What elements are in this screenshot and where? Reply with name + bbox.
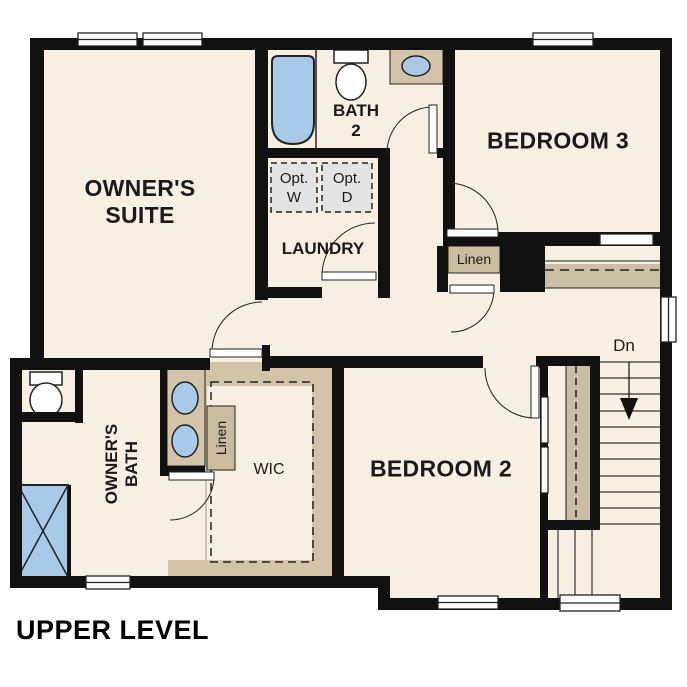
closet-door-panel xyxy=(541,447,548,493)
hall-linen-label: Linen xyxy=(457,251,491,267)
wall-segment xyxy=(378,148,390,243)
owners-suite-label: OWNER'SSUITE xyxy=(84,175,195,229)
sink xyxy=(402,56,430,76)
toilet xyxy=(30,372,62,417)
window xyxy=(143,33,202,46)
wall-segment xyxy=(270,356,483,368)
wall-segment xyxy=(378,243,390,298)
closet-door-panel xyxy=(541,397,548,443)
window xyxy=(438,596,498,609)
wall-segment xyxy=(262,345,270,371)
bedroom3-label: BEDROOM 3 xyxy=(487,128,629,155)
sink xyxy=(172,382,198,414)
wall-segment xyxy=(255,48,268,300)
window xyxy=(78,33,137,46)
stair-top-guard xyxy=(545,261,663,288)
wall-segment xyxy=(255,287,322,298)
shower xyxy=(18,485,71,577)
window xyxy=(86,576,130,589)
bath2-vanity xyxy=(390,48,443,84)
wall-segment xyxy=(540,520,598,530)
stair-rail-opening xyxy=(600,234,653,245)
wall-segment xyxy=(443,38,455,246)
plan-title: UPPER LEVEL xyxy=(16,615,209,646)
optional-washer-label: Opt.W xyxy=(280,169,308,207)
wall-segment xyxy=(378,598,672,610)
wall-segment xyxy=(255,148,390,158)
chase-solid-fill xyxy=(500,246,545,292)
wall-segment xyxy=(10,576,386,588)
wall-segment xyxy=(10,358,210,370)
bathtub xyxy=(272,56,314,144)
toilet xyxy=(334,50,368,100)
window xyxy=(661,297,676,342)
laundry-label: LAUNDRY xyxy=(282,239,364,259)
wall-segment xyxy=(437,246,448,292)
bath-linen-label: Linen xyxy=(213,421,229,455)
floor-plan: OWNER'SSUITE BATH2 BEDROOM 3 LAUNDRY Opt… xyxy=(0,0,687,687)
wall-segment xyxy=(332,356,344,586)
double-vanity xyxy=(167,362,205,466)
wall-segment xyxy=(540,356,598,366)
bath2-label: BATH2 xyxy=(333,101,379,141)
wall-segment xyxy=(30,38,44,370)
window xyxy=(533,33,593,46)
bedroom2-closet xyxy=(566,366,590,520)
optional-dryer-label: Opt.D xyxy=(333,169,361,207)
owners-bath-label: OWNER'SBATH xyxy=(102,424,142,505)
wall-segment xyxy=(160,362,167,475)
stairs-down-label: Dn xyxy=(613,336,635,356)
sink xyxy=(172,425,198,457)
wall-segment xyxy=(10,358,22,588)
bedroom2-label: BEDROOM 2 xyxy=(370,456,512,483)
wic-label: WIC xyxy=(253,461,284,479)
wall-segment xyxy=(18,412,83,422)
window xyxy=(560,595,620,611)
wall-segment xyxy=(590,356,600,530)
